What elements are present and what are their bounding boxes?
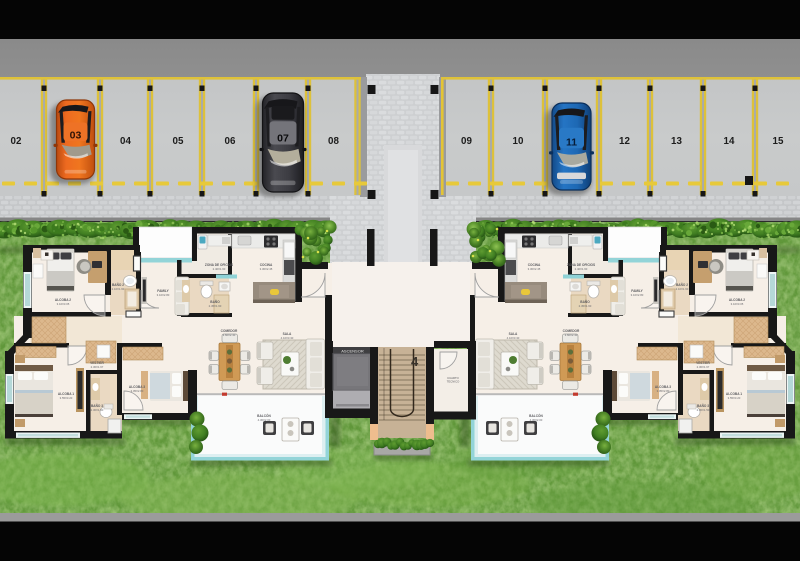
svg-text:11: 11 [566,137,577,149]
svg-text:4.30X2.00: 4.30X2.00 [258,418,271,422]
svg-text:4.30X2.00: 4.30X2.00 [530,418,543,422]
svg-text:2.45X1.60: 2.45X1.60 [209,304,222,308]
svg-text:02: 02 [11,136,22,147]
svg-text:10: 10 [513,136,524,147]
svg-text:13: 13 [671,136,682,147]
svg-text:09: 09 [461,136,472,147]
svg-text:03: 03 [70,130,82,142]
svg-text:2.45X1.60: 2.45X1.60 [579,304,592,308]
svg-text:4.10X3.30: 4.10X3.30 [507,336,520,340]
svg-text:4.10X3.30: 4.10X3.30 [281,336,294,340]
svg-text:2.30X1.67: 2.30X1.67 [91,365,104,369]
svg-text:3.55X3.20: 3.55X3.20 [728,396,741,400]
svg-text:3.05X2.80: 3.05X2.80 [657,389,670,393]
svg-text:3.30X2.45: 3.30X2.45 [260,267,273,271]
svg-text:2.30X1.50: 2.30X1.50 [91,408,104,412]
svg-text:2.10X1.60: 2.10X1.60 [112,287,125,291]
svg-text:TECNICO: TECNICO [447,380,460,384]
svg-text:3.10X2.80: 3.10X2.80 [157,293,170,297]
svg-text:06: 06 [225,136,236,147]
svg-text:3.30X2.45: 3.30X2.45 [528,267,541,271]
svg-text:2.40X1.60: 2.40X1.60 [213,267,226,271]
svg-text:3.55X3.20: 3.55X3.20 [60,396,73,400]
svg-text:07: 07 [277,133,289,145]
svg-text:ASCENSOR: ASCENSOR [341,348,364,353]
svg-text:15: 15 [773,136,784,147]
svg-text:3.10X2.80: 3.10X2.80 [631,293,644,297]
svg-text:12: 12 [619,136,630,147]
svg-text:2.10X1.60: 2.10X1.60 [676,287,689,291]
svg-text:04: 04 [120,136,131,147]
svg-text:3.05X2.80: 3.05X2.80 [131,389,144,393]
svg-text:2.40X1.60: 2.40X1.60 [575,267,588,271]
svg-text:2.30X1.50: 2.30X1.50 [697,408,710,412]
svg-text:4: 4 [411,354,419,369]
svg-text:3.10X3.05: 3.10X3.05 [731,302,744,306]
svg-text:2.30X1.67: 2.30X1.67 [697,365,710,369]
svg-text:14: 14 [724,136,735,147]
svg-text:05: 05 [173,136,184,147]
svg-text:3.60X2.30: 3.60X2.30 [223,333,236,337]
svg-text:3.10X3.05: 3.10X3.05 [57,302,70,306]
svg-text:3.60X2.30: 3.60X2.30 [565,333,578,337]
svg-text:08: 08 [328,136,339,147]
